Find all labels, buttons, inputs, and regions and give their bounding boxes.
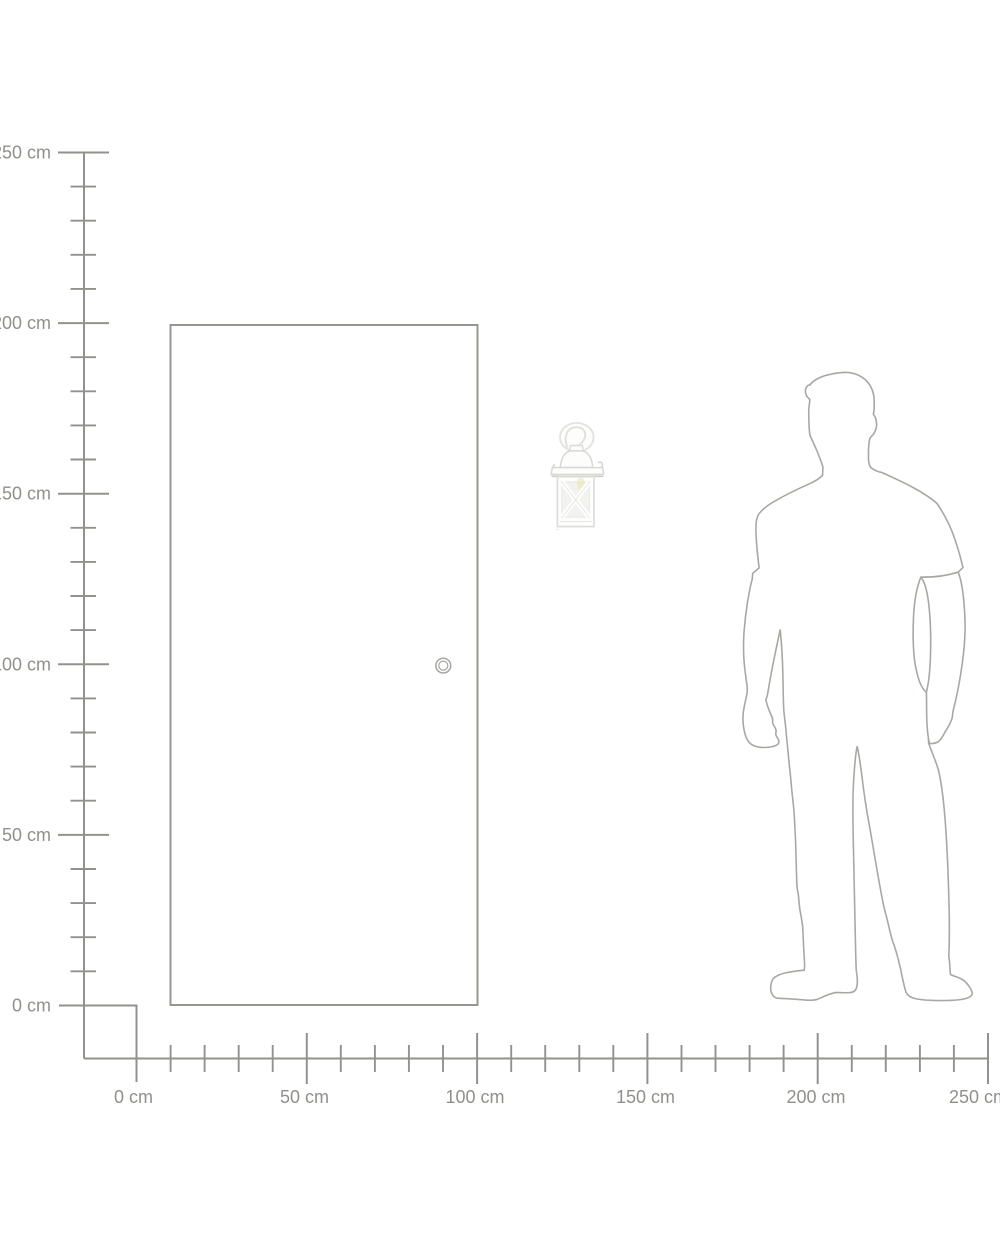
svg-text:50 cm: 50 cm: [280, 1087, 329, 1107]
svg-text:0 cm: 0 cm: [12, 996, 51, 1016]
svg-text:0 cm: 0 cm: [114, 1087, 153, 1107]
svg-text:150 cm: 150 cm: [0, 484, 51, 504]
svg-text:100 cm: 100 cm: [0, 654, 51, 674]
svg-text:100 cm: 100 cm: [445, 1087, 504, 1107]
svg-text:250 cm: 250 cm: [0, 143, 51, 163]
svg-text:200 cm: 200 cm: [786, 1087, 845, 1107]
svg-text:250 cm: 250 cm: [949, 1087, 1000, 1107]
svg-text:200 cm: 200 cm: [0, 313, 51, 333]
svg-text:50 cm: 50 cm: [2, 825, 51, 845]
svg-text:150 cm: 150 cm: [616, 1087, 675, 1107]
